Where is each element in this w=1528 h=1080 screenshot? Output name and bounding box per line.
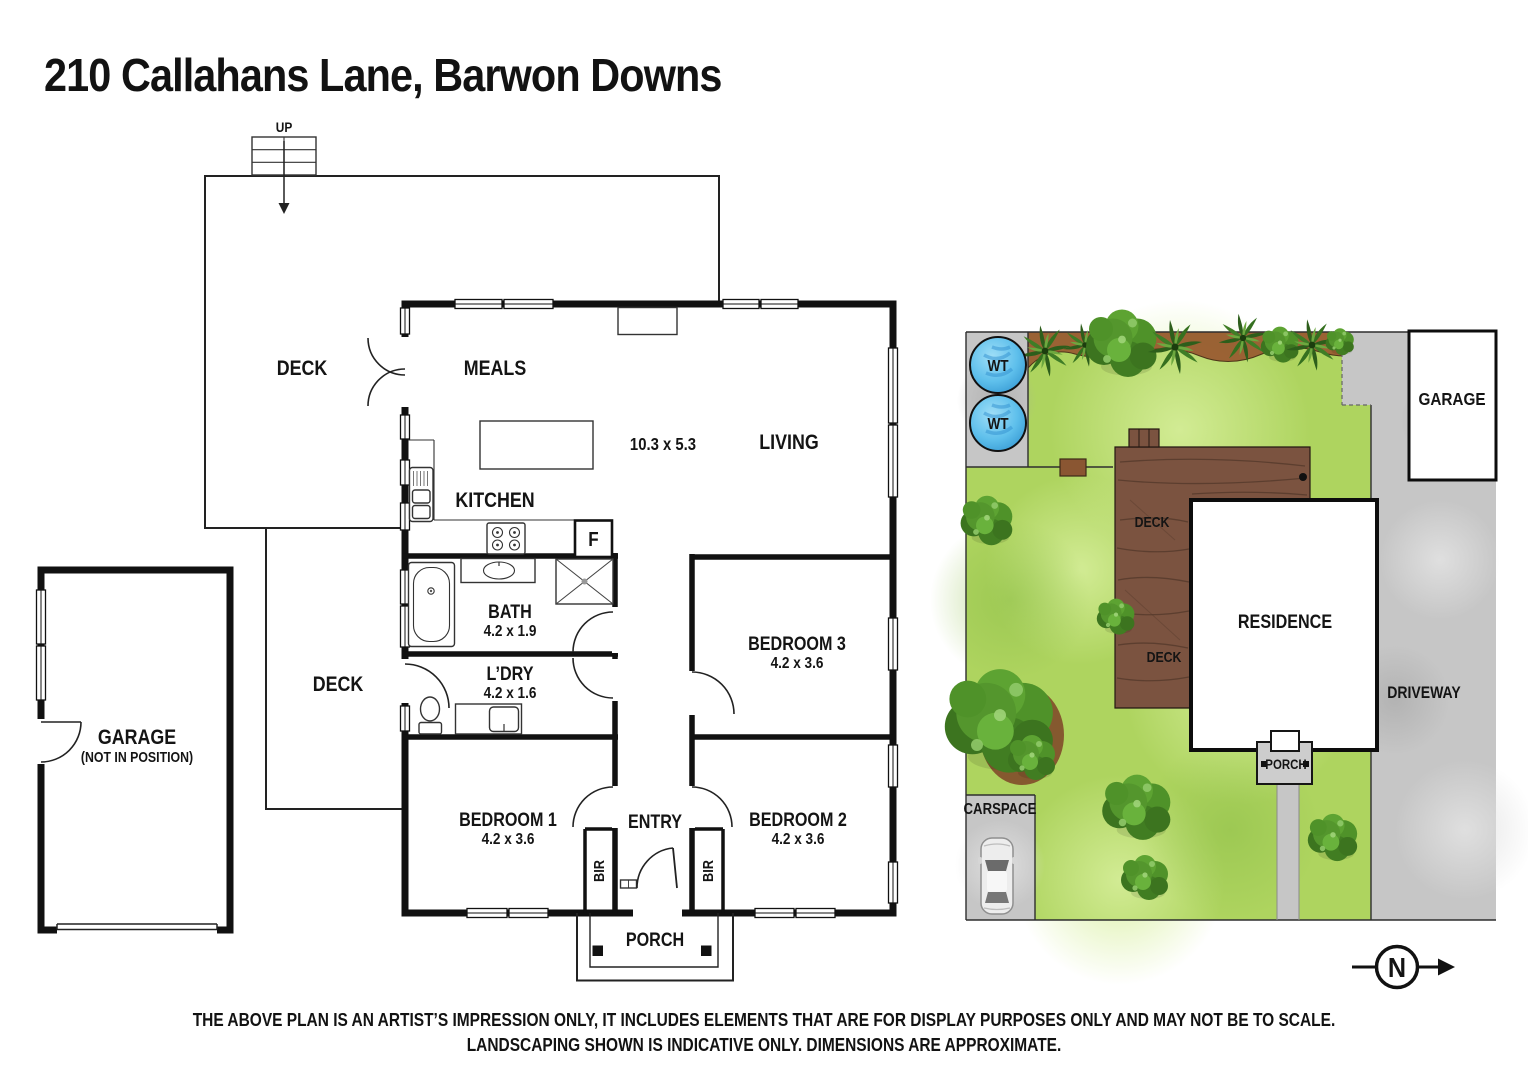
porch-post <box>701 946 712 957</box>
residence-label: RESIDENCE <box>1238 611 1332 633</box>
compass: N <box>1352 947 1455 988</box>
meals-label: MEALS <box>464 357 526 381</box>
bath-label: BATH <box>488 601 532 623</box>
bathtub <box>409 563 455 647</box>
bedroom2-door-arc <box>692 787 732 827</box>
site-deck-lower-label: DECK <box>1147 649 1182 665</box>
bedroom1-label: BEDROOM 1 <box>459 809 557 831</box>
living-label: LIVING <box>759 431 818 455</box>
plan-drawing: WT WT GARAGE DECK DECK RESIDENCE DRIVEWA… <box>0 0 1528 1080</box>
porch-path <box>1277 784 1299 920</box>
fridge-label: F <box>588 528 598 551</box>
driveway-label: DRIVEWAY <box>1387 684 1460 702</box>
bedroom2-dims-label: 4.2 x 3.6 <box>772 831 825 848</box>
site-plan: WT WT GARAGE DECK DECK RESIDENCE DRIVEWA… <box>930 300 1528 985</box>
porch-label: PORCH <box>626 929 684 951</box>
kitchen-island <box>480 421 593 469</box>
disclaimer-line-1: THE ABOVE PLAN IS AN ARTIST’S IMPRESSION… <box>107 1008 1421 1033</box>
bir-right-label: BIR <box>699 860 716 882</box>
bedroom2-label: BEDROOM 2 <box>749 809 847 831</box>
bedroom1-door-arc <box>573 787 613 827</box>
kitchen-label: KITCHEN <box>455 489 534 513</box>
deck-post-dot <box>1299 473 1307 481</box>
laundry-door-arc <box>573 658 613 698</box>
disclaimer: THE ABOVE PLAN IS AN ARTIST’S IMPRESSION… <box>107 1008 1421 1058</box>
deck-side-label: DECK <box>313 673 364 697</box>
entry-label: ENTRY <box>628 811 682 833</box>
carspace-label: CARSPACE <box>964 801 1037 818</box>
compass-arrow-icon <box>1438 959 1455 976</box>
wt2-label: WT <box>987 416 1008 433</box>
bedroom3-label: BEDROOM 3 <box>748 633 846 655</box>
vanity-basin <box>461 559 535 583</box>
disclaimer-line-2: LANDSCAPING SHOWN IS INDICATIVE ONLY. DI… <box>107 1033 1421 1058</box>
garage-note-label: (NOT IN POSITION) <box>81 749 193 765</box>
stairs-arrow-icon <box>279 203 290 214</box>
site-porch-label: PORCH <box>1265 757 1306 772</box>
floor-plan-page: 210 Callahans Lane, Barwon Downs <box>0 0 1528 1080</box>
bedroom3-door-arc <box>692 672 734 714</box>
garage-door-arc <box>41 722 81 762</box>
bath-door-arc <box>573 612 613 652</box>
bath-dims-label: 4.2 x 1.9 <box>484 623 537 640</box>
floor-plan: UP DECK MEALS 10.3 x 5.3 LIVING KITCHEN … <box>37 119 898 980</box>
entry-door-leaf <box>673 848 677 888</box>
wt1-label: WT <box>987 358 1008 375</box>
site-deck-upper-label: DECK <box>1135 514 1170 530</box>
shower <box>556 559 613 604</box>
bedroom3-dims-label: 4.2 x 3.6 <box>771 655 824 672</box>
kitchen-sink <box>410 468 434 522</box>
deck-upper-label: DECK <box>277 357 328 381</box>
planter-box <box>1060 459 1086 476</box>
car-icon <box>978 838 1016 914</box>
porch-notch <box>1271 731 1299 751</box>
fireplace <box>618 308 677 335</box>
laundry-label: L’DRY <box>487 663 534 685</box>
stove <box>487 523 525 554</box>
bir-left-label: BIR <box>590 860 607 882</box>
deck-steps <box>1129 429 1159 447</box>
living-dims-label: 10.3 x 5.3 <box>630 435 696 454</box>
entry-door-arc <box>637 848 673 888</box>
laundry-dims-label: 4.2 x 1.6 <box>484 685 537 702</box>
laundry-trough <box>456 704 522 734</box>
entry-step <box>621 880 637 888</box>
toilet <box>419 697 442 734</box>
staircase <box>252 137 316 214</box>
garage-label: GARAGE <box>98 726 176 750</box>
porch-post <box>593 946 604 957</box>
compass-north-label: N <box>1388 952 1406 984</box>
site-garage-label: GARAGE <box>1418 389 1485 409</box>
up-label: UP <box>276 119 293 135</box>
bedroom1-dims-label: 4.2 x 3.6 <box>482 831 535 848</box>
